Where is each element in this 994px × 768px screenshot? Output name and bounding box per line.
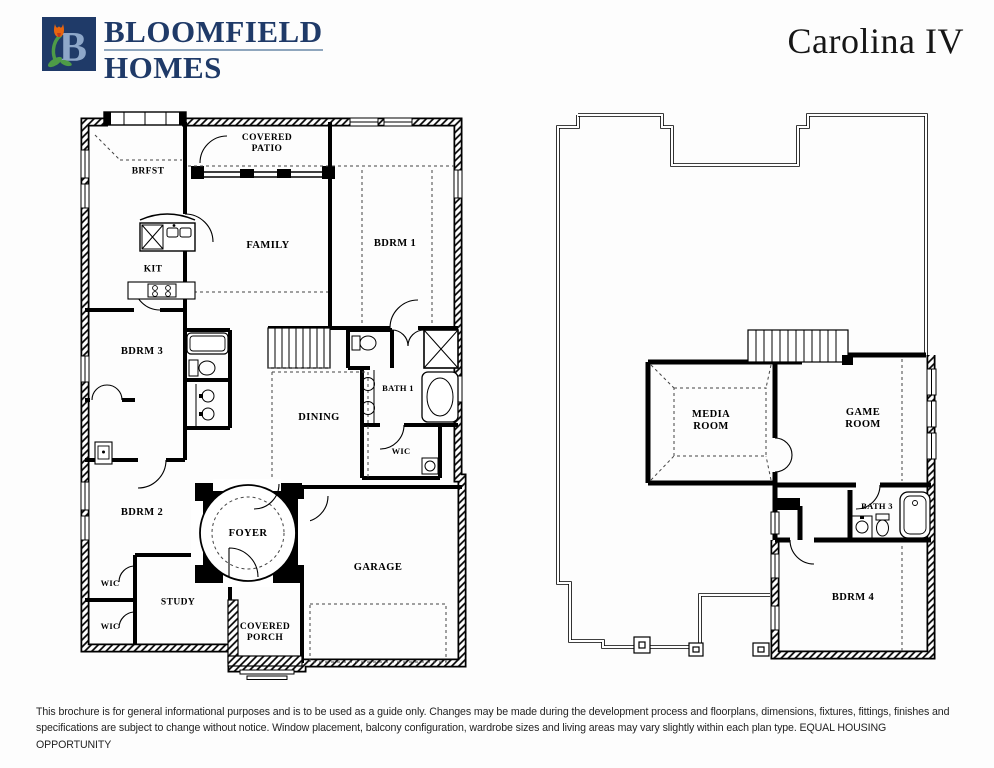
second-floor-drawing: [540, 106, 955, 671]
first-floor-drawing: [70, 106, 470, 698]
first-floor-plan: BRFST COVERED PATIO FAMILY BDRM 1 KIT BD…: [70, 106, 470, 698]
brand-name-line2: HOMES: [104, 52, 323, 84]
disclaimer-text: This brochure is for general information…: [36, 704, 961, 753]
brand-logo-icon: B: [42, 17, 96, 71]
brand-name: BLOOMFIELD HOMES: [104, 16, 323, 83]
brand-logo: B: [42, 17, 96, 71]
page-root: { "brand": { "line1": "BLOOMFIELD", "lin…: [0, 0, 994, 768]
brand-name-line1: BLOOMFIELD: [104, 16, 323, 51]
plan-title: Carolina IV: [788, 20, 964, 62]
second-floor-plan: MEDIA ROOM GAME ROOM BATH 3 BDRM 4: [540, 106, 955, 671]
